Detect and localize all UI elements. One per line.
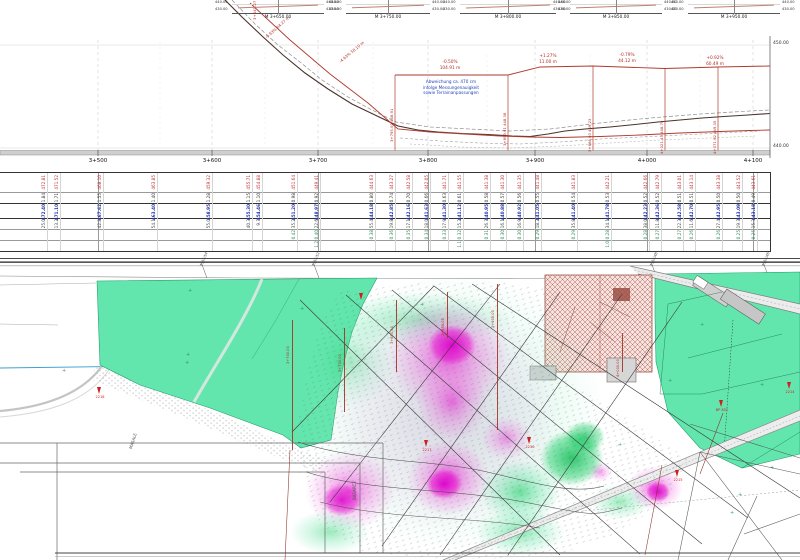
plan-section-line [622, 333, 623, 372]
survey-marker [359, 293, 365, 305]
area-label: BASARC2 [352, 481, 357, 500]
cadastral-label: 7365/52 [311, 252, 320, 267]
marker-arrow-icon [359, 293, 363, 300]
plan-section-line [396, 300, 397, 372]
plan-section-label: 3+700.00 [286, 324, 290, 364]
marker-label: 2217 [412, 448, 442, 452]
plan-section-line [292, 320, 293, 450]
plan-section-label: 3+900.00 [491, 288, 495, 328]
marker-label: 2218 [85, 395, 115, 399]
survey-marker: 2214 [787, 382, 793, 394]
drawing-sheet: M 3+650.00440.00430.00440.00430.00M 3+75… [0, 0, 800, 560]
plan-section-label: 4+000.00 [616, 337, 620, 377]
marker-label: BP 851 [707, 408, 737, 412]
plan-section-label: 3+850.00 [441, 296, 445, 336]
survey-marker: BP 851 [719, 400, 725, 412]
survey-marker: 2216 [527, 437, 533, 449]
marker-arrow-icon [675, 470, 679, 477]
marker-arrow-icon [787, 382, 791, 389]
cadastral-label: 7365/54 [199, 252, 208, 267]
marker-arrow-icon [97, 387, 101, 394]
plan-overlays: 7365/547365/527365/487365/463+700.003+75… [0, 0, 800, 560]
plan-section-label: 3+800.00 [390, 304, 394, 344]
cadastral-label: 7365/46 [761, 252, 770, 267]
marker-arrow-icon [424, 440, 428, 447]
marker-arrow-icon [719, 400, 723, 407]
survey-marker: 2217 [424, 440, 430, 452]
marker-label: 2215 [663, 478, 693, 482]
area-label: MASALE [128, 433, 138, 450]
survey-marker: 2218 [97, 387, 103, 399]
marker-label: 2214 [775, 390, 800, 394]
marker-arrow-icon [527, 437, 531, 444]
cadastral-label: 7365/48 [649, 252, 658, 267]
marker-label: 2216 [515, 445, 545, 449]
plan-section-label: 3+750.00 [338, 332, 342, 372]
plan-section-line [497, 284, 498, 430]
survey-marker: 2215 [675, 470, 681, 482]
plan-section-line [344, 328, 345, 412]
plan-section-line [447, 292, 448, 338]
